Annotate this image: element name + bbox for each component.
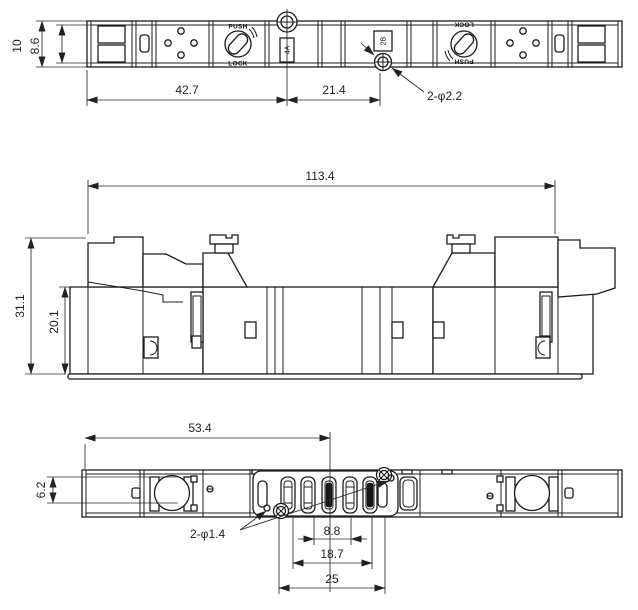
dim-8-8: 8.8: [324, 524, 341, 538]
side-tab: [392, 322, 403, 338]
port-label-2b: 2B: [374, 31, 392, 51]
knob-push-label: PUSH: [228, 24, 247, 31]
dim-113-4: 113.4: [305, 169, 334, 183]
left-latch-detail: [144, 337, 158, 358]
bottom-slot-right: [565, 488, 573, 498]
left-clip-channel: [191, 292, 203, 348]
round-port-right: [497, 476, 558, 512]
right-latch-detail: [536, 337, 550, 358]
manifold-port-3: [322, 477, 336, 513]
right-end-block: [495, 237, 558, 287]
dim-20-1: 20.1: [47, 310, 61, 334]
bottom-slot-left: [132, 488, 140, 498]
top-view: PUSH LOCK PUSH LOCK: [10, 9, 622, 106]
right-station-shoulder: [433, 253, 495, 287]
top-view-body: PUSH LOCK PUSH LOCK: [87, 9, 622, 106]
edge-tab: [442, 470, 452, 474]
side-tab: [245, 322, 256, 338]
round-port-left: [150, 476, 197, 512]
svg-text:2-φ1.4: 2-φ1.4: [190, 527, 225, 541]
base-plate: [68, 374, 582, 379]
right-protrusion: [558, 240, 615, 297]
left-end-block: [88, 237, 143, 287]
left-fitting-stem: [215, 244, 233, 253]
knob-lock-label: LOCK: [228, 61, 248, 68]
svg-text:PUSH: PUSH: [454, 58, 473, 65]
drawing-canvas: PUSH LOCK PUSH LOCK: [0, 0, 638, 610]
right-fitting-stem: [452, 244, 470, 253]
front-view: 113.4 31.1 20.1: [13, 169, 615, 379]
phi22-screw: [375, 54, 392, 71]
svg-text:2B: 2B: [381, 36, 388, 45]
bottom-view: 53.4 6.2 2-φ1.4 8.8 18.7: [34, 421, 622, 594]
connector-block: [400, 477, 417, 510]
manifold: [253, 468, 398, 519]
right-fitting-cap: [447, 235, 475, 244]
manifold-port-5: [363, 477, 377, 513]
dim-53-4: 53.4: [188, 421, 212, 435]
dim-21-4: 21.4: [322, 83, 346, 97]
svg-text:4A: 4A: [285, 45, 292, 54]
edge-tab: [402, 470, 412, 474]
top-slot-right: [555, 35, 564, 52]
left-station-shoulder: [203, 253, 247, 287]
dim-8-6: 8.6: [28, 37, 42, 54]
dim-31-1: 31.1: [13, 294, 27, 318]
top-slot-left: [140, 35, 149, 52]
dim-10: 10: [10, 39, 24, 53]
dim-25: 25: [325, 572, 339, 586]
left-roof-step: [143, 254, 203, 287]
left-fitting-cap: [210, 235, 238, 244]
svg-text:LOCK: LOCK: [454, 21, 474, 28]
side-tab: [433, 322, 444, 338]
front-view-body: [68, 235, 615, 379]
svg-text:2-φ2.2: 2-φ2.2: [427, 89, 462, 103]
dim-6-2: 6.2: [34, 481, 48, 498]
dim-42-7: 42.7: [175, 83, 199, 97]
dim-18-7: 18.7: [320, 547, 344, 561]
valve-technical-drawing: PUSH LOCK PUSH LOCK: [0, 0, 638, 610]
